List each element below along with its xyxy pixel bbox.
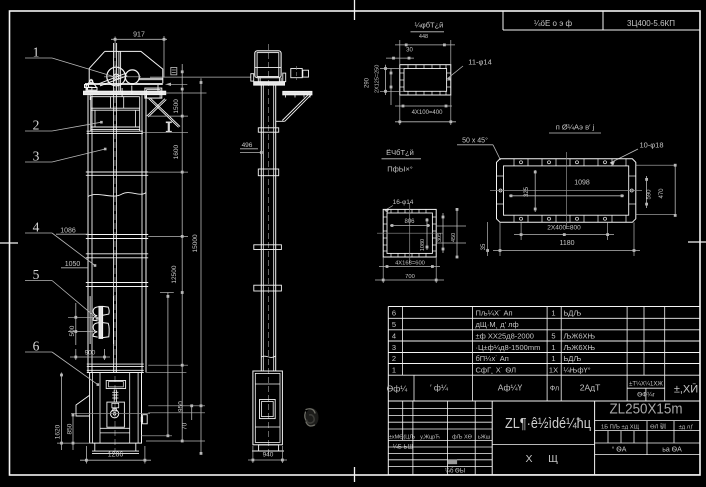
- svg-text:290: 290: [365, 77, 371, 88]
- svg-text:5: 5: [33, 267, 40, 282]
- svg-text:500: 500: [69, 325, 76, 336]
- svg-text:4X100=400: 4X100=400: [412, 110, 444, 116]
- svg-text:1X: 1X: [549, 365, 558, 374]
- svg-text:1098: 1098: [574, 180, 590, 187]
- svg-text:±ф XX25д8-2000: ±ф XX25д8-2000: [476, 331, 534, 340]
- svg-text:305: 305: [437, 233, 443, 242]
- svg-text:′ ф¼: ′ ф¼: [430, 383, 449, 393]
- svg-text:4: 4: [33, 220, 40, 235]
- svg-text:1: 1: [392, 365, 396, 374]
- svg-text:1050: 1050: [65, 261, 81, 268]
- svg-text:70: 70: [182, 422, 189, 430]
- svg-text:470: 470: [659, 188, 665, 199]
- svg-text:Пљ¼Х˙ Ап: Пљ¼Х˙ Ап: [476, 308, 513, 317]
- svg-text:Фл: Фл: [550, 386, 559, 393]
- svg-text:3Ц400-5.6КП: 3Ц400-5.6КП: [627, 19, 675, 28]
- svg-text:1080: 1080: [420, 239, 426, 251]
- svg-text:±хМѲ(ЦЉ: ±хМѲ(ЦЉ: [389, 434, 416, 440]
- svg-text:496: 496: [242, 142, 253, 149]
- svg-text:¼Б ЬЩ: ¼Б ЬЩ: [393, 445, 414, 451]
- svg-text:¼φбТ¿й: ¼φбТ¿й: [415, 21, 444, 30]
- svg-text:1Б ПЉ ±д ХЩ: 1Б ПЉ ±д ХЩ: [601, 425, 640, 431]
- svg-text:1620: 1620: [55, 424, 62, 439]
- svg-text:дЩ·М˛ д′ лф: дЩ·М˛ д′ лф: [476, 320, 519, 329]
- svg-text:бП¼х˙ Ап: бП¼х˙ Ап: [476, 354, 509, 363]
- svg-text:806: 806: [404, 219, 415, 225]
- svg-text:2X125=250: 2X125=250: [375, 65, 381, 93]
- svg-text:1180: 1180: [559, 240, 574, 247]
- svg-text:СфГ˛ Х˙ ѲЛ: СфГ˛ Х˙ ѲЛ: [476, 365, 517, 374]
- svg-text:ЁЧбТ¿й: ЁЧбТ¿й: [386, 148, 414, 157]
- svg-text:1: 1: [33, 45, 40, 60]
- svg-text:ьа ѲА: ьа ѲА: [662, 447, 682, 454]
- svg-text:±Т¼Х¼1ХЖ: ±Т¼Х¼1ХЖ: [629, 382, 663, 388]
- svg-text:1: 1: [551, 354, 555, 363]
- svg-text:15000: 15000: [192, 234, 199, 252]
- svg-text:4X168=600: 4X168=600: [395, 260, 425, 266]
- svg-text:5: 5: [392, 320, 396, 329]
- svg-text:¼б ѲЫ: ¼б ѲЫ: [445, 469, 465, 475]
- svg-text:п Ø¼Аэ в′ ј: п Ø¼Аэ в′ ј: [556, 123, 595, 132]
- svg-text:6: 6: [33, 339, 40, 354]
- svg-text:¼ЊфҮ°: ¼ЊфҮ°: [564, 365, 591, 374]
- svg-text:ьЖш: ьЖш: [478, 434, 491, 440]
- svg-text:700: 700: [405, 274, 415, 280]
- svg-text:450: 450: [451, 233, 457, 242]
- svg-text:ЉЖ6ХЊ: ЉЖ6ХЊ: [564, 343, 596, 352]
- svg-text:1286: 1286: [108, 452, 124, 459]
- svg-text:1086: 1086: [60, 228, 76, 235]
- svg-text:917: 917: [133, 32, 145, 39]
- svg-text:2: 2: [392, 354, 396, 363]
- svg-text:ZL250X15m: ZL250X15m: [610, 402, 683, 418]
- svg-text:ѲЛ 驯: ѲЛ 驯: [650, 423, 666, 431]
- svg-text:ЬДЉ: ЬДЉ: [564, 354, 582, 363]
- svg-text:50 x 45°: 50 x 45°: [462, 137, 488, 145]
- svg-text:1500: 1500: [173, 99, 180, 114]
- svg-text:Х: Х: [525, 453, 532, 465]
- svg-text:950: 950: [178, 401, 185, 412]
- svg-text:Щ: Щ: [548, 453, 558, 465]
- svg-text:3: 3: [392, 343, 396, 352]
- svg-text:590: 590: [647, 189, 653, 200]
- svg-text:1600: 1600: [173, 145, 180, 160]
- svg-text:2: 2: [33, 118, 40, 133]
- svg-text:12500: 12500: [171, 265, 178, 283]
- svg-text:·Ц±ф¼д8-1500mm: ·Ц±ф¼д8-1500mm: [476, 343, 541, 352]
- svg-text:900: 900: [85, 350, 96, 357]
- svg-text:1: 1: [551, 308, 555, 317]
- svg-text:3: 3: [33, 149, 40, 164]
- svg-text:448: 448: [419, 34, 428, 40]
- svg-text:фЉ ХѲ: фЉ ХѲ: [452, 434, 473, 440]
- svg-text:850: 850: [67, 423, 74, 434]
- svg-text:ЬДЉ: ЬДЉ: [564, 308, 582, 317]
- svg-text:325: 325: [524, 186, 530, 197]
- svg-text:±,ХӢ: ±,ХӢ: [674, 384, 698, 396]
- svg-text:±д лƒ: ±д лƒ: [679, 425, 694, 431]
- svg-text:30: 30: [406, 48, 413, 54]
- svg-text:35: 35: [481, 243, 487, 250]
- svg-text:2АдТ: 2АдТ: [580, 383, 601, 393]
- svg-text:ЉЖ6ХЊ: ЉЖ6ХЊ: [564, 331, 596, 340]
- svg-text:11-φ14: 11-φ14: [468, 58, 492, 67]
- svg-text:10-φ18: 10-φ18: [639, 141, 663, 150]
- svg-text:Ѳф¼: Ѳф¼: [387, 384, 409, 394]
- svg-text:Аф¼Ү: Аф¼Ү: [498, 383, 523, 393]
- svg-text:ПфЫ×°: ПфЫ×°: [387, 165, 413, 174]
- svg-text:2X400=800: 2X400=800: [547, 225, 581, 232]
- svg-text:¼öЕ о э ф: ¼öЕ о э ф: [534, 19, 573, 28]
- svg-text:5: 5: [551, 331, 555, 340]
- svg-text:16-φ14: 16-φ14: [393, 199, 414, 206]
- svg-text:ZL¶·ê½ìdé¼ћц: ZL¶·ê½ìdé¼ћц: [505, 416, 591, 432]
- svg-text:у,ЖцрЋ: у,ЖцрЋ: [420, 434, 440, 440]
- svg-text:1: 1: [551, 343, 555, 352]
- svg-text:4: 4: [392, 331, 396, 340]
- svg-text:6: 6: [392, 308, 396, 317]
- svg-text:ѲФ¼г: ѲФ¼г: [637, 392, 655, 399]
- svg-text:° ѲА: ° ѲА: [612, 446, 627, 454]
- svg-text:940: 940: [263, 452, 274, 459]
